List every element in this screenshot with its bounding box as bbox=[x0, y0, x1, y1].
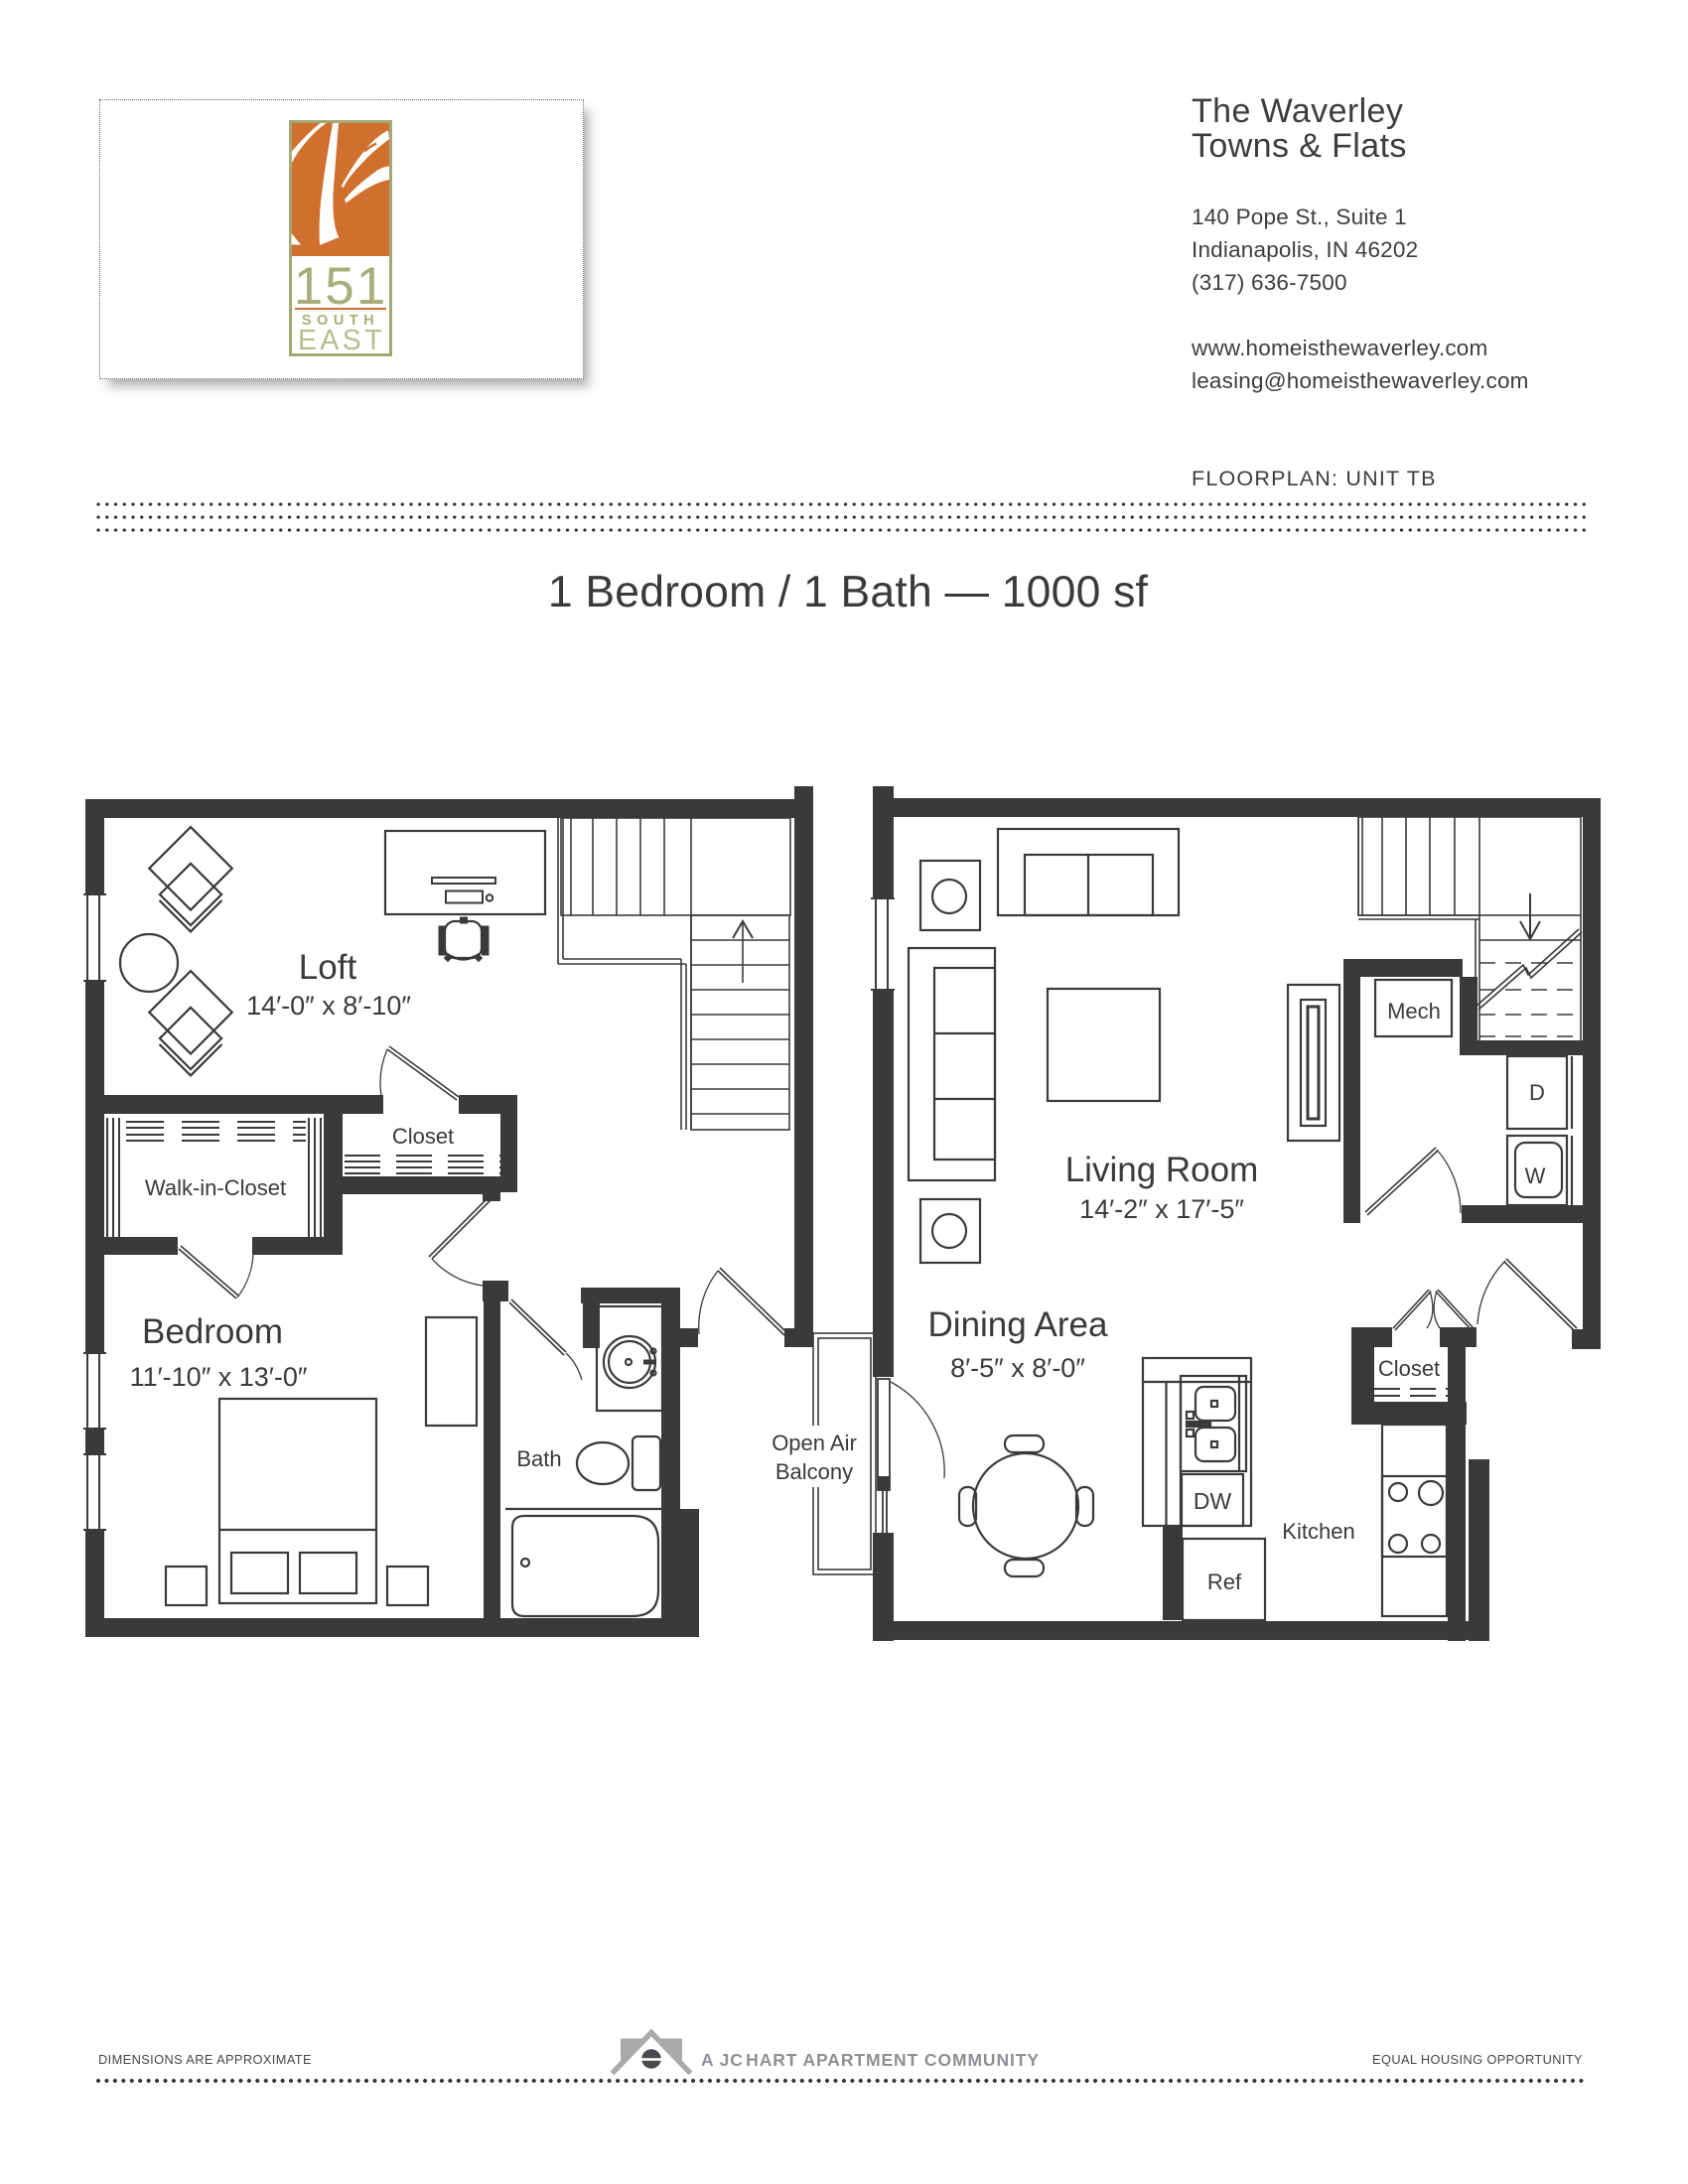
svg-text:Bedroom: Bedroom bbox=[142, 1312, 283, 1351]
svg-text:14′-2″ x 17′-5″: 14′-2″ x 17′-5″ bbox=[1079, 1194, 1244, 1224]
svg-text:Open Air: Open Air bbox=[772, 1431, 857, 1455]
svg-text:Closet: Closet bbox=[1378, 1356, 1440, 1381]
svg-text:Loft: Loft bbox=[299, 948, 357, 987]
svg-text:DW: DW bbox=[1194, 1488, 1232, 1514]
svg-text:8′-5″ x 8′-0″: 8′-5″ x 8′-0″ bbox=[950, 1353, 1085, 1383]
svg-text:D: D bbox=[1529, 1080, 1545, 1105]
svg-text:Mech: Mech bbox=[1387, 999, 1441, 1024]
svg-text:Living Room: Living Room bbox=[1065, 1151, 1259, 1189]
svg-text:11′-10″ x 13′-0″: 11′-10″ x 13′-0″ bbox=[130, 1362, 308, 1392]
svg-text:Bath: Bath bbox=[516, 1446, 561, 1471]
svg-text:14′-0″ x 8′-10″: 14′-0″ x 8′-10″ bbox=[246, 991, 411, 1021]
svg-text:Kitchen: Kitchen bbox=[1282, 1519, 1354, 1544]
svg-text:W: W bbox=[1525, 1163, 1546, 1188]
svg-text:Ref: Ref bbox=[1207, 1570, 1242, 1594]
svg-text:Closet: Closet bbox=[392, 1124, 454, 1149]
svg-text:Walk-in-Closet: Walk-in-Closet bbox=[145, 1175, 286, 1200]
svg-text:Balcony: Balcony bbox=[775, 1459, 853, 1484]
svg-text:Dining Area: Dining Area bbox=[928, 1305, 1108, 1344]
